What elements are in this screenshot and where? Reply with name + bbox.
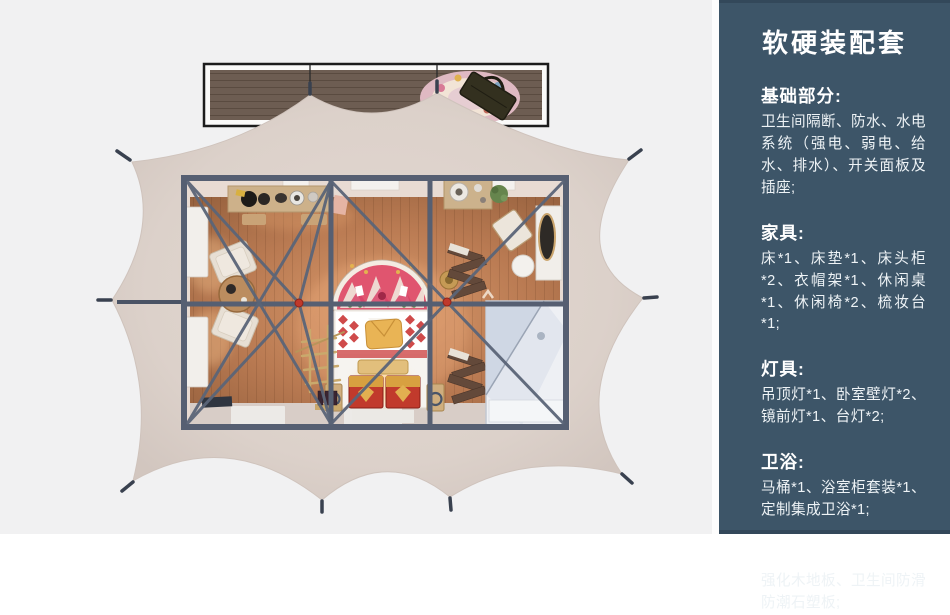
integrated-bathroom — [486, 301, 568, 425]
section-body: 床*1、床垫*1、床头柜*2、衣帽架*1、休闲桌*1、休闲椅*2、梳妆台*1; — [761, 249, 926, 337]
mirror — [539, 214, 555, 260]
stool — [242, 214, 266, 225]
page: 软硬装配套 基础部分: 卫生间隔断、防水、水电系统（强电、弱电、给水、排水）、开… — [0, 0, 950, 534]
section-heading: 家具: — [761, 220, 926, 245]
section-heading: 灯具: — [761, 356, 926, 381]
section-body: 吊顶灯*1、卧室壁灯*2、镜前灯*1、台灯*2; — [761, 385, 926, 429]
floorplan-svg — [0, 0, 712, 534]
section-heading: 卫浴: — [761, 449, 926, 474]
floorplan-render — [0, 0, 712, 534]
foot-cushion — [358, 360, 408, 374]
section-body: 强化木地板、卫生间防滑防潮石塑板; — [761, 571, 926, 615]
floor-mat — [352, 410, 414, 423]
floor-mat — [231, 406, 285, 425]
panel-title: 软硬装配套 — [725, 28, 944, 59]
section-heading: 基础部分: — [761, 83, 926, 108]
section-heading: 地面: — [761, 542, 926, 567]
vanity-stool — [512, 255, 534, 277]
coffee-table — [219, 276, 255, 312]
panel-divider — [712, 0, 719, 534]
section-floor: 地面: 强化木地板、卫生间防滑防潮石塑板; — [761, 542, 926, 615]
section-furniture: 家具: 床*1、床垫*1、床头柜*2、衣帽架*1、休闲桌*1、休闲椅*2、梳妆台… — [761, 220, 926, 337]
section-body: 卫生间隔断、防水、水电系统（强电、弱电、给水、排水）、开关面板及插座; — [761, 112, 926, 200]
section-lighting: 灯具: 吊顶灯*1、卧室壁灯*2、镜前灯*1、台灯*2; — [761, 356, 926, 429]
coffee-maker — [275, 193, 287, 203]
section-basics: 基础部分: 卫生间隔断、防水、水电系统（强电、弱电、给水、排水）、开关面板及插座… — [761, 83, 926, 200]
kettle — [226, 284, 236, 294]
info-panel: 软硬装配套 基础部分: 卫生间隔断、防水、水电系统（强电、弱电、给水、排水）、开… — [719, 0, 950, 534]
section-body: 马桶*1、浴室柜套装*1、定制集成卫浴*1; — [761, 478, 926, 522]
section-bathroom: 卫浴: 马桶*1、浴室柜套装*1、定制集成卫浴*1; — [761, 449, 926, 522]
fixture — [537, 332, 545, 340]
pillow — [365, 319, 403, 349]
hat — [258, 193, 270, 205]
